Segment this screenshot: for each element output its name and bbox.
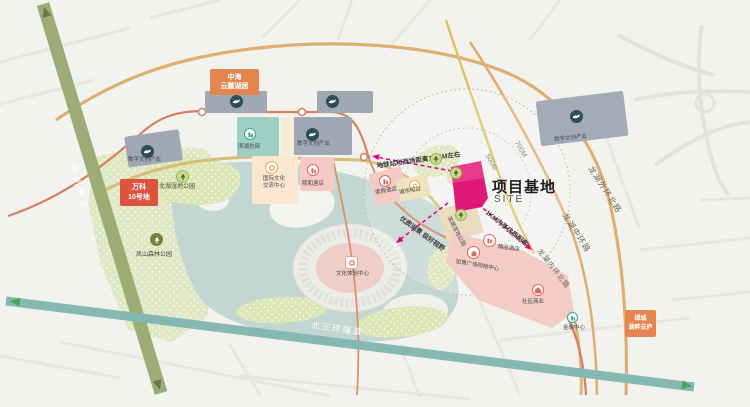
hotel-icon <box>307 164 319 176</box>
finance-center-label: 金融中心 <box>563 326 585 332</box>
estate-greentown-line1: 绿城 <box>625 315 656 323</box>
boutique-hotel-icon <box>483 234 496 247</box>
retail-icon <box>532 284 544 296</box>
estate-zhonghai-line2: 云麓湖居 <box>210 82 259 91</box>
forest-park-label: 凤山森林公园 <box>136 252 172 258</box>
culture-center-label-line1: 国际文化 <box>263 177 285 183</box>
estate-vanke: 万科 10号地 <box>120 179 158 206</box>
experience-center-icon <box>345 256 358 269</box>
industry-label: 数字文创产业 <box>128 158 161 164</box>
site-subtitle: SITE <box>494 194 524 205</box>
culture-center-icon <box>265 161 278 174</box>
estate-zhonghai-line1: 中海 <box>210 73 259 82</box>
block-headquarters <box>237 117 279 157</box>
headquarters-label: 滨湖总部 <box>238 145 260 151</box>
finance-center-icon <box>567 312 578 323</box>
estate-vanke-line1: 万科 <box>120 183 158 192</box>
retail-label: 社区商业 <box>522 300 544 306</box>
experience-center-label: 文化体验中心 <box>336 272 369 278</box>
industry-icon <box>326 95 339 108</box>
tree-icon <box>430 153 442 165</box>
estate-greentown-line2: 湖畔云庐 <box>625 324 656 332</box>
tree-icon <box>450 167 462 179</box>
hotel-label: 熙和酒店 <box>302 182 324 188</box>
highway-interchange <box>618 25 750 195</box>
tree-icon <box>176 170 189 183</box>
estate-zhonghai: 中海 云麓湖居 <box>210 69 259 95</box>
hotel-icon <box>379 175 391 187</box>
map-base-svg <box>0 0 750 407</box>
north-wetland-label: 北湖湿地公园 <box>159 184 195 190</box>
block-cream-sliver <box>281 117 295 155</box>
industry-icon <box>306 128 319 141</box>
shopping-mall-icon <box>467 246 480 259</box>
estate-greentown: 绿城 湖畔云庐 <box>625 310 656 337</box>
headquarters-icon <box>244 128 256 140</box>
culture-center-label-line2: 交流中心 <box>263 184 285 190</box>
industry-label: 数字文创产业 <box>297 142 330 148</box>
tree-icon <box>455 209 467 221</box>
site-location-map: 中州大道 北三环隧道 龙湖外环北路 龙湖中环路 龙湖内环北路 500M 700M… <box>0 0 750 407</box>
industry-icon <box>230 95 243 108</box>
block-industry <box>294 117 352 155</box>
estate-vanke-line2: 10号地 <box>120 193 158 202</box>
forest-park-icon <box>150 233 163 246</box>
industry-icon <box>570 110 583 123</box>
